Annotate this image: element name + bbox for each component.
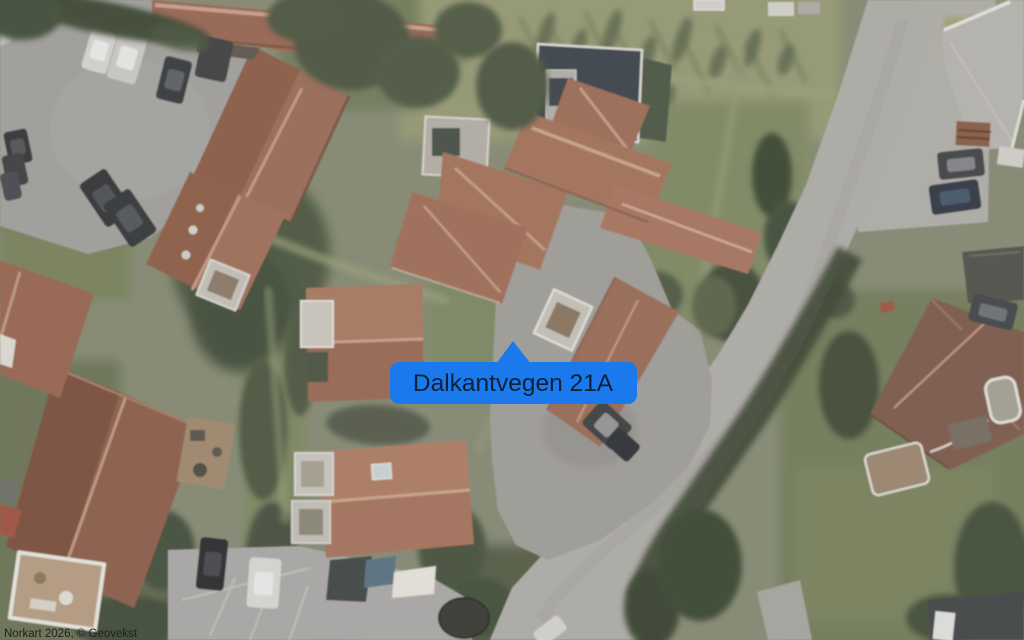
svg-text:Norkart 2026, © Geovekst: Norkart 2026, © Geovekst (4, 628, 138, 640)
svg-text:Dalkantvegen 21A: Dalkantvegen 21A (413, 370, 614, 397)
